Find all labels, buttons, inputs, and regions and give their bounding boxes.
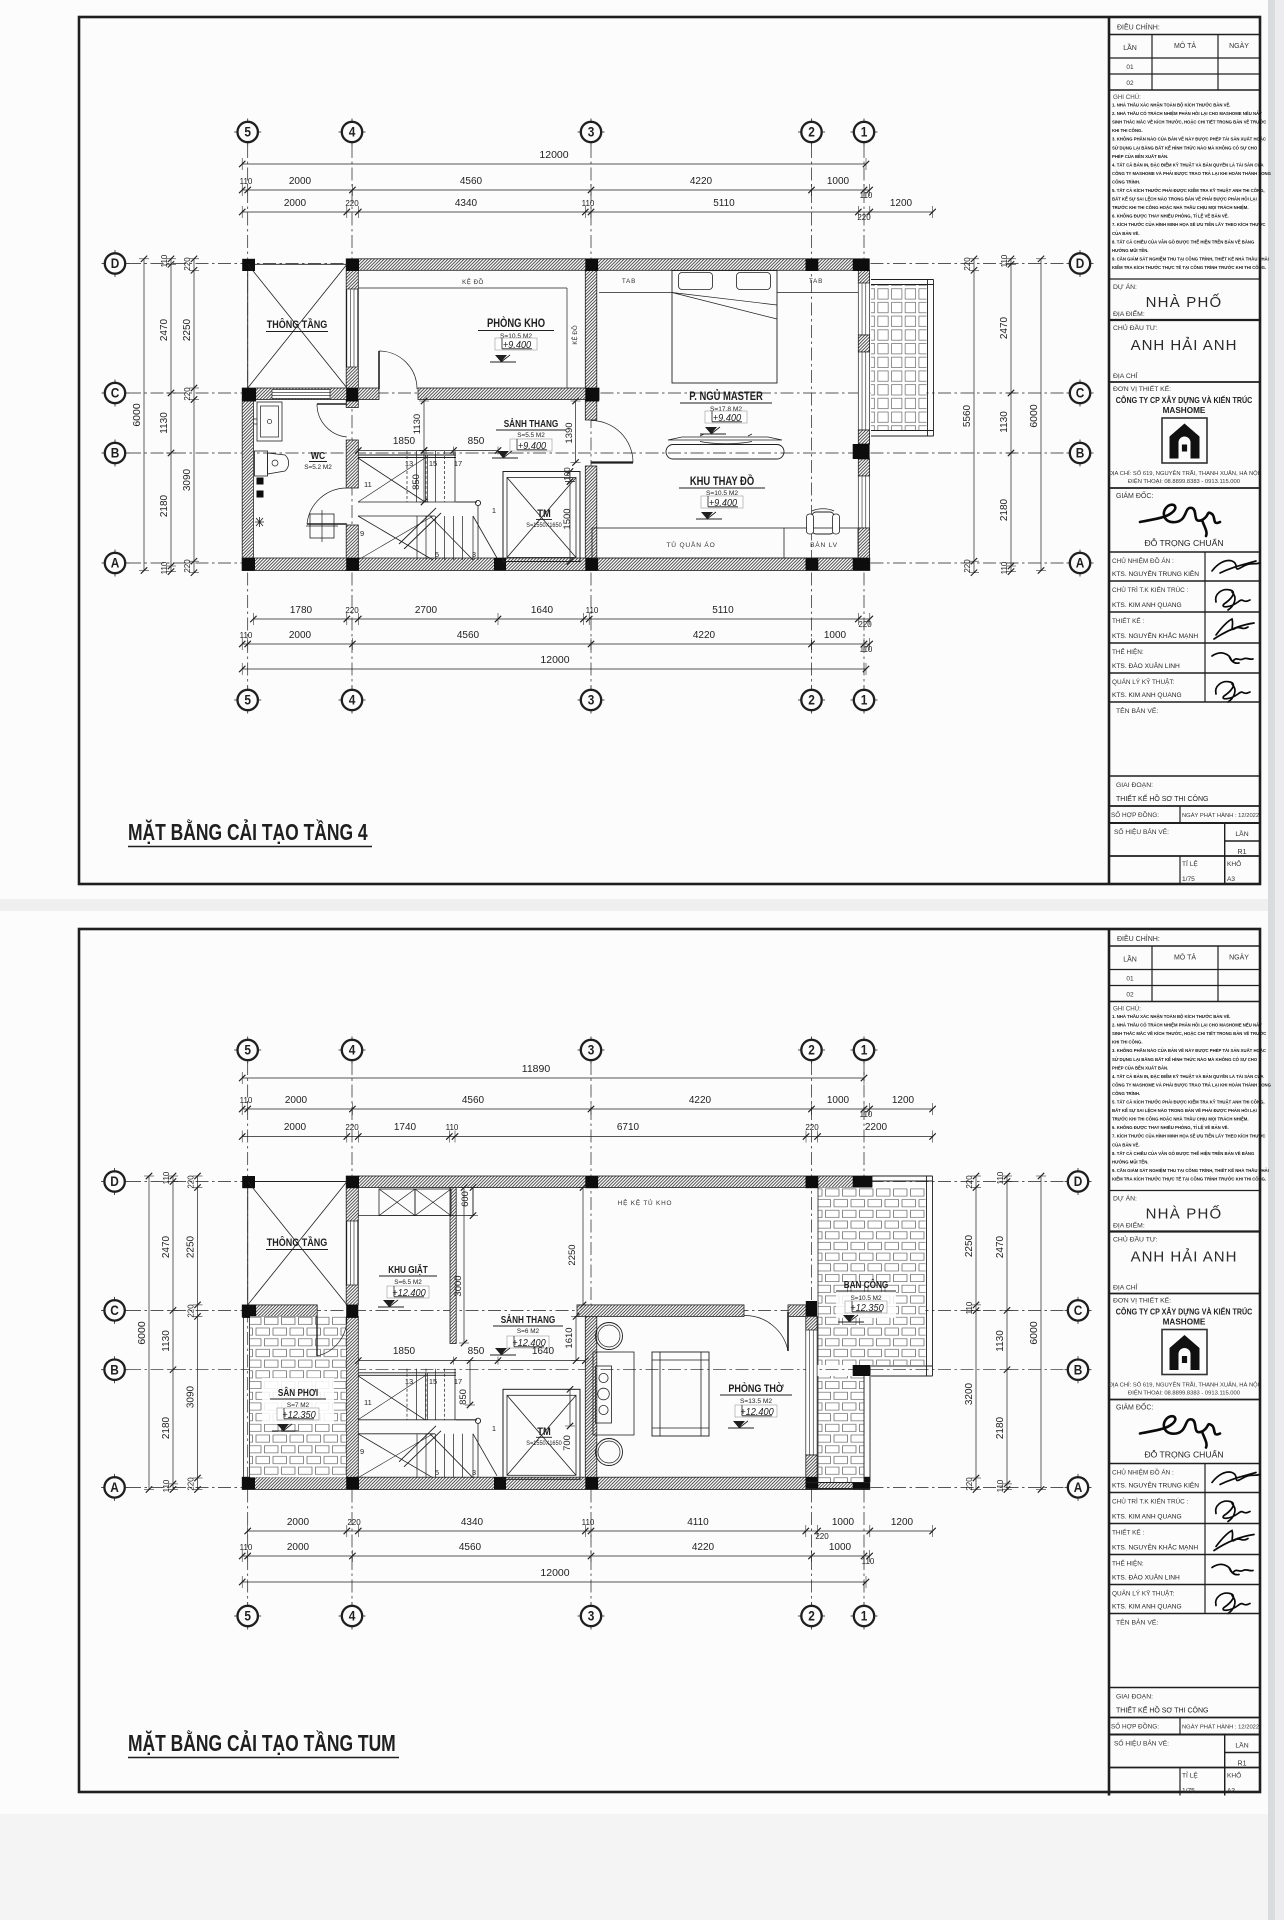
svg-text:ĐỊA ĐIỂM:: ĐỊA ĐIỂM: xyxy=(1113,309,1145,318)
svg-text:GIAI ĐOẠN:: GIAI ĐOẠN: xyxy=(1116,782,1153,789)
svg-text:110: 110 xyxy=(240,631,253,640)
svg-text:S=13.5 M2: S=13.5 M2 xyxy=(740,1398,772,1405)
svg-text:WC: WC xyxy=(311,450,325,461)
svg-text:5560: 5560 xyxy=(962,404,973,427)
svg-text:A: A xyxy=(110,1479,119,1495)
svg-text:5: 5 xyxy=(244,124,251,140)
svg-text:5110: 5110 xyxy=(712,605,734,616)
svg-text:KTS. NGUYỄN KHẮC MẠNH: KTS. NGUYỄN KHẮC MẠNH xyxy=(1112,1543,1198,1552)
svg-text:GHI CHÚ:: GHI CHÚ: xyxy=(1113,94,1141,101)
svg-text:220: 220 xyxy=(347,1518,361,1527)
svg-text:1000: 1000 xyxy=(827,1095,850,1106)
svg-text:+12.400: +12.400 xyxy=(740,1407,774,1418)
svg-text:ĐỊA CHỈ: SỐ 619, NGUYỄN TRÃI,: ĐỊA CHỈ: SỐ 619, NGUYỄN TRÃI, THANH XUÂN… xyxy=(1109,470,1260,477)
svg-text:17: 17 xyxy=(454,459,462,468)
svg-text:220: 220 xyxy=(183,257,192,271)
svg-text:1850: 1850 xyxy=(393,436,416,447)
svg-text:D: D xyxy=(110,1173,119,1189)
svg-text:12000: 12000 xyxy=(539,149,568,161)
svg-text:1640: 1640 xyxy=(531,605,554,616)
svg-text:4340: 4340 xyxy=(461,1517,484,1528)
svg-text:3: 3 xyxy=(588,692,595,708)
svg-text:KTS. ĐÀO XUÂN LINH: KTS. ĐÀO XUÂN LINH xyxy=(1112,1573,1180,1582)
svg-text:BAN CÔNG: BAN CÔNG xyxy=(844,1278,889,1290)
svg-text:220: 220 xyxy=(187,1175,196,1189)
svg-text:+12.350: +12.350 xyxy=(850,1303,884,1314)
svg-text:ANH HẢI ANH: ANH HẢI ANH xyxy=(1131,337,1238,354)
svg-text:ĐỊA ĐIỂM:: ĐỊA ĐIỂM: xyxy=(1113,1221,1145,1230)
svg-text:GHI CHÚ:: GHI CHÚ: xyxy=(1113,1006,1141,1013)
svg-text:+9.400: +9.400 xyxy=(709,498,738,509)
svg-text:TÊN BẢN VẼ:: TÊN BẢN VẼ: xyxy=(1116,706,1158,715)
svg-text:110: 110 xyxy=(582,199,595,208)
svg-text:6000: 6000 xyxy=(1028,1321,1040,1345)
svg-text:+9.400: +9.400 xyxy=(503,340,532,351)
svg-text:6000: 6000 xyxy=(136,1321,148,1345)
svg-text:QUẢN LÝ KỸ THUẬT:: QUẢN LÝ KỸ THUẬT: xyxy=(1112,677,1175,686)
svg-text:1640: 1640 xyxy=(532,1346,555,1357)
svg-text:110: 110 xyxy=(160,254,169,267)
svg-text:4340: 4340 xyxy=(455,198,478,209)
svg-text:850: 850 xyxy=(458,1389,469,1405)
svg-text:6000: 6000 xyxy=(1028,404,1040,428)
svg-text:KHU THAY ĐỒ: KHU THAY ĐỒ xyxy=(690,474,754,488)
svg-text:S=1550X1650: S=1550X1650 xyxy=(526,1441,562,1447)
svg-text:MÔ TẢ: MÔ TẢ xyxy=(1174,41,1196,50)
svg-text:KHỔ: KHỔ xyxy=(1227,859,1241,868)
svg-text:2000: 2000 xyxy=(287,1517,310,1528)
svg-text:2250: 2250 xyxy=(186,1235,197,1258)
svg-text:1: 1 xyxy=(861,1042,868,1058)
svg-text:4. TẤT CẢ BẢN IN, ĐẶC ĐIỂM KỸ: 4. TẤT CẢ BẢN IN, ĐẶC ĐIỂM KỸ THUẬT VÀ B… xyxy=(1112,161,1264,167)
svg-text:KTS. NGUYỄN KHẮC MẠNH: KTS. NGUYỄN KHẮC MẠNH xyxy=(1112,631,1198,640)
svg-text:2000: 2000 xyxy=(287,1542,310,1553)
svg-text:NHÀ PHỐ: NHÀ PHỐ xyxy=(1146,1205,1223,1223)
svg-text:CÔNG TY CP XÂY DỰNG VÀ KIẾN TR: CÔNG TY CP XÂY DỰNG VÀ KIẾN TRÚC xyxy=(1116,395,1253,406)
svg-text:220: 220 xyxy=(965,1477,974,1491)
svg-text:11890: 11890 xyxy=(522,1063,551,1075)
svg-text:110: 110 xyxy=(240,1543,253,1552)
svg-text:B: B xyxy=(1076,445,1085,461)
svg-text:220: 220 xyxy=(963,257,972,271)
svg-text:5110: 5110 xyxy=(713,198,735,209)
svg-text:KTS. KIM ANH QUANG: KTS. KIM ANH QUANG xyxy=(1112,1604,1182,1611)
svg-text:ĐỊA CHỈ: ĐỊA CHỈ xyxy=(1113,371,1138,380)
svg-text:110: 110 xyxy=(996,1171,1005,1184)
svg-text:B: B xyxy=(110,1362,119,1378)
svg-text:6000: 6000 xyxy=(131,403,143,427)
svg-text:2: 2 xyxy=(808,1608,815,1624)
svg-text:P. NGỦ MASTER: P. NGỦ MASTER xyxy=(689,389,763,403)
svg-text:4110: 4110 xyxy=(687,1517,709,1528)
svg-text:4: 4 xyxy=(349,124,356,140)
svg-text:A: A xyxy=(1074,1479,1083,1495)
svg-text:01: 01 xyxy=(1126,64,1134,71)
svg-text:3: 3 xyxy=(472,1468,476,1477)
svg-text:1/75: 1/75 xyxy=(1182,1788,1195,1795)
svg-text:SẢNH THANG: SẢNH THANG xyxy=(501,1313,556,1325)
svg-text:KỆ ĐỒ: KỆ ĐỒ xyxy=(571,325,579,344)
svg-text:1: 1 xyxy=(861,1608,868,1624)
svg-text:4. TẤT CẢ BẢN IN, ĐẶC ĐIỂM KỸ: 4. TẤT CẢ BẢN IN, ĐẶC ĐIỂM KỸ THUẬT VÀ B… xyxy=(1112,1073,1264,1079)
svg-text:11: 11 xyxy=(364,480,372,489)
svg-text:1780: 1780 xyxy=(290,605,313,616)
svg-text:850: 850 xyxy=(468,1346,485,1357)
svg-text:2250: 2250 xyxy=(964,1234,975,1257)
svg-text:1200: 1200 xyxy=(891,1517,914,1528)
svg-text:220: 220 xyxy=(965,1175,974,1189)
svg-text:220: 220 xyxy=(187,1304,196,1318)
svg-text:KTS. KIM ANH QUANG: KTS. KIM ANH QUANG xyxy=(1112,692,1182,699)
svg-text:ĐỊA CHỈ: SỐ 619, NGUYỄN TRÃI,: ĐỊA CHỈ: SỐ 619, NGUYỄN TRÃI, THANH XUÂN… xyxy=(1109,1382,1260,1389)
svg-text:C: C xyxy=(1074,1302,1083,1318)
svg-text:110: 110 xyxy=(160,561,169,574)
svg-text:1000: 1000 xyxy=(829,1542,852,1553)
svg-text:1130: 1130 xyxy=(995,1330,1006,1352)
svg-text:D: D xyxy=(111,255,120,271)
svg-text:NGÀY: NGÀY xyxy=(1229,41,1249,50)
svg-text:BÀN LV: BÀN LV xyxy=(810,540,838,549)
svg-text:220: 220 xyxy=(963,559,972,573)
svg-text:1/75: 1/75 xyxy=(1182,876,1195,883)
svg-text:5: 5 xyxy=(244,692,251,708)
svg-text:TAB: TAB xyxy=(809,278,823,285)
svg-text:700: 700 xyxy=(562,1435,573,1451)
svg-text:ANH HẢI ANH: ANH HẢI ANH xyxy=(1131,1249,1238,1266)
svg-text:12000: 12000 xyxy=(540,1567,569,1579)
svg-text:4560: 4560 xyxy=(462,1095,485,1106)
svg-text:MẶT BẰNG CẢI TẠO TẦNG TUM: MẶT BẰNG CẢI TẠO TẦNG TUM xyxy=(128,1730,396,1757)
svg-text:1130: 1130 xyxy=(412,414,423,434)
svg-text:1000: 1000 xyxy=(832,1517,855,1528)
svg-text:5: 5 xyxy=(244,1042,251,1058)
svg-text:TÊN BẢN VẼ:: TÊN BẢN VẼ: xyxy=(1116,1618,1158,1627)
svg-text:MASHOME: MASHOME xyxy=(1163,406,1206,415)
svg-text:SẢNH THANG: SẢNH THANG xyxy=(504,417,559,429)
svg-text:2180: 2180 xyxy=(159,494,170,517)
svg-text:02: 02 xyxy=(1126,992,1134,999)
svg-text:MẶT BẰNG CẢI TẠO TẦNG 4: MẶT BẰNG CẢI TẠO TẦNG 4 xyxy=(128,819,368,846)
svg-text:R1: R1 xyxy=(1238,1761,1247,1768)
svg-text:6710: 6710 xyxy=(617,1122,640,1133)
svg-text:3200: 3200 xyxy=(964,1382,975,1405)
svg-text:A3: A3 xyxy=(1227,1788,1235,1795)
svg-text:1: 1 xyxy=(492,1424,496,1433)
svg-text:220: 220 xyxy=(345,606,359,615)
svg-text:220: 220 xyxy=(815,1532,829,1541)
svg-text:3: 3 xyxy=(588,1608,595,1624)
svg-text:220: 220 xyxy=(858,620,872,629)
svg-text:GIAI ĐOẠN:: GIAI ĐOẠN: xyxy=(1116,1694,1153,1701)
svg-text:02: 02 xyxy=(1126,80,1134,87)
svg-text:D: D xyxy=(1074,1173,1083,1189)
svg-text:2180: 2180 xyxy=(995,1416,1006,1439)
svg-text:THÔNG TẦNG: THÔNG TẦNG xyxy=(267,1235,328,1249)
svg-text:1000: 1000 xyxy=(827,176,850,187)
svg-text:2700: 2700 xyxy=(415,605,438,616)
svg-text:110: 110 xyxy=(446,1123,459,1132)
svg-text:1850: 1850 xyxy=(393,1346,416,1357)
svg-text:C: C xyxy=(111,385,120,401)
svg-text:2250: 2250 xyxy=(182,318,193,341)
svg-text:TỈ LỆ: TỈ LỆ xyxy=(1182,859,1198,868)
svg-text:A: A xyxy=(111,555,120,571)
svg-text:220: 220 xyxy=(345,199,359,208)
svg-text:CÔNG TY CP XÂY DỰNG VÀ KIẾN TR: CÔNG TY CP XÂY DỰNG VÀ KIẾN TRÚC xyxy=(1116,1306,1253,1317)
svg-text:110: 110 xyxy=(240,1096,253,1105)
svg-text:01: 01 xyxy=(1126,976,1134,983)
svg-text:1130: 1130 xyxy=(161,1330,172,1352)
svg-text:2470: 2470 xyxy=(995,1235,1006,1258)
svg-text:5: 5 xyxy=(244,1608,251,1624)
svg-text:3: 3 xyxy=(588,1042,595,1058)
svg-text:NGÀY: NGÀY xyxy=(1229,953,1249,962)
svg-text:1130: 1130 xyxy=(999,411,1010,433)
svg-text:PHÒNG KHO: PHÒNG KHO xyxy=(487,316,545,330)
svg-text:15: 15 xyxy=(429,459,437,468)
svg-text:220: 220 xyxy=(345,1123,359,1132)
svg-text:THỂ HIỆN:: THỂ HIỆN: xyxy=(1112,1559,1144,1568)
svg-text:2000: 2000 xyxy=(289,176,312,187)
svg-text:ĐIỆN THOẠI: 08.8899.8383 - 091: ĐIỆN THOẠI: 08.8899.8383 - 0913.115.000 xyxy=(1128,1389,1240,1397)
svg-text:ĐIỆN THOẠI: 08.8899.8383 - 091: ĐIỆN THOẠI: 08.8899.8383 - 0913.115.000 xyxy=(1128,477,1240,485)
svg-text:2180: 2180 xyxy=(161,1416,172,1439)
svg-text:1200: 1200 xyxy=(890,198,913,209)
svg-text:R1: R1 xyxy=(1238,849,1247,856)
svg-text:1200: 1200 xyxy=(892,1095,915,1106)
svg-text:2: 2 xyxy=(808,692,815,708)
svg-text:A3: A3 xyxy=(1227,876,1235,883)
svg-text:4220: 4220 xyxy=(692,1542,715,1553)
svg-text:NHÀ PHỐ: NHÀ PHỐ xyxy=(1146,293,1223,311)
svg-text:1000: 1000 xyxy=(824,630,847,641)
svg-text:9: 9 xyxy=(360,1447,364,1456)
svg-text:S=6.5 M2: S=6.5 M2 xyxy=(394,1279,422,1286)
svg-text:110: 110 xyxy=(996,1479,1005,1492)
svg-text:110: 110 xyxy=(240,177,253,186)
svg-text:+12.400: +12.400 xyxy=(392,1288,426,1299)
svg-text:1740: 1740 xyxy=(394,1122,417,1133)
svg-text:110: 110 xyxy=(860,1110,873,1119)
svg-text:KTS. NGUYỄN TRUNG KIÊN: KTS. NGUYỄN TRUNG KIÊN xyxy=(1112,1481,1199,1490)
svg-text:2470: 2470 xyxy=(161,1235,172,1258)
svg-text:NGÀY PHÁT HÀNH : 12/2022: NGÀY PHÁT HÀNH : 12/2022 xyxy=(1182,1724,1259,1731)
svg-text:4: 4 xyxy=(349,1042,356,1058)
svg-text:110: 110 xyxy=(586,606,599,615)
svg-text:1: 1 xyxy=(492,506,496,515)
svg-text:HỆ KỆ TỦ KHO: HỆ KỆ TỦ KHO xyxy=(618,1198,673,1207)
svg-text:17: 17 xyxy=(454,1377,462,1386)
svg-text:2000: 2000 xyxy=(284,1122,307,1133)
svg-text:15: 15 xyxy=(429,1377,437,1386)
svg-text:4220: 4220 xyxy=(689,1095,712,1106)
svg-text:TỈ LỆ: TỈ LỆ xyxy=(1182,1771,1198,1780)
svg-text:12000: 12000 xyxy=(540,654,569,666)
svg-text:B: B xyxy=(111,445,120,461)
svg-text:600: 600 xyxy=(460,1191,471,1207)
svg-text:SÂN PHƠI: SÂN PHƠI xyxy=(278,1386,318,1398)
svg-text:4220: 4220 xyxy=(690,176,713,187)
svg-text:3090: 3090 xyxy=(182,468,193,491)
svg-text:+12.350: +12.350 xyxy=(282,1410,316,1421)
svg-text:D: D xyxy=(1076,255,1085,271)
svg-text:TM: TM xyxy=(537,1426,550,1438)
svg-text:110: 110 xyxy=(862,1557,875,1566)
svg-text:9: 9 xyxy=(360,529,364,538)
svg-text:220: 220 xyxy=(805,1123,819,1132)
svg-text:4: 4 xyxy=(349,692,356,708)
svg-text:4220: 4220 xyxy=(693,630,716,641)
svg-text:TAB: TAB xyxy=(622,278,636,285)
svg-text:11: 11 xyxy=(364,1398,372,1407)
svg-text:KTS. ĐÀO XUÂN LINH: KTS. ĐÀO XUÂN LINH xyxy=(1112,661,1180,670)
svg-text:KỆ ĐỒ: KỆ ĐỒ xyxy=(462,278,484,286)
svg-text:1130: 1130 xyxy=(159,412,170,434)
svg-text:1390: 1390 xyxy=(564,422,575,443)
svg-text:5: 5 xyxy=(435,550,439,559)
svg-text:110: 110 xyxy=(162,1479,171,1492)
svg-text:3000: 3000 xyxy=(453,1275,464,1296)
svg-text:1500: 1500 xyxy=(562,508,573,529)
svg-text:2250: 2250 xyxy=(567,1244,578,1265)
svg-text:2: 2 xyxy=(808,124,815,140)
svg-text:C: C xyxy=(1076,385,1085,401)
svg-text:2470: 2470 xyxy=(999,316,1010,339)
svg-text:2180: 2180 xyxy=(999,498,1010,521)
svg-text:TM: TM xyxy=(537,508,550,520)
svg-text:4560: 4560 xyxy=(457,630,480,641)
svg-text:110: 110 xyxy=(965,1301,974,1314)
svg-text:220: 220 xyxy=(187,1477,196,1491)
svg-text:DỰ ÁN:: DỰ ÁN: xyxy=(1113,282,1137,291)
svg-text:ĐỖ TRỌNG CHUẨN: ĐỖ TRỌNG CHUẨN xyxy=(1144,1449,1223,1460)
svg-text:1: 1 xyxy=(861,692,868,708)
svg-text:CỦA BẢN VẼ.: CỦA BẢN VẼ. xyxy=(1112,1141,1140,1147)
svg-text:B: B xyxy=(1074,1362,1083,1378)
svg-text:220: 220 xyxy=(183,387,192,401)
svg-text:C: C xyxy=(110,1302,119,1318)
svg-text:1: 1 xyxy=(861,124,868,140)
svg-text:3090: 3090 xyxy=(186,1385,197,1408)
svg-text:MÔ TẢ: MÔ TẢ xyxy=(1174,953,1196,962)
svg-text:+9.400: +9.400 xyxy=(713,413,742,424)
svg-text:ĐỖ TRỌNG CHUẨN: ĐỖ TRỌNG CHUẨN xyxy=(1144,537,1223,548)
svg-text:NGÀY PHÁT HÀNH : 12/2022: NGÀY PHÁT HÀNH : 12/2022 xyxy=(1182,812,1259,819)
svg-text:220: 220 xyxy=(857,213,871,222)
svg-text:4: 4 xyxy=(349,1608,356,1624)
svg-text:5: 5 xyxy=(435,1468,439,1477)
svg-text:KHU GIẶT: KHU GIẶT xyxy=(388,1264,428,1275)
svg-text:S=5.2 M2: S=5.2 M2 xyxy=(304,464,332,471)
svg-text:S=1550X1650: S=1550X1650 xyxy=(526,523,562,529)
svg-text:KTS. NGUYỄN TRUNG KIÊN: KTS. NGUYỄN TRUNG KIÊN xyxy=(1112,569,1199,578)
svg-text:2000: 2000 xyxy=(284,198,307,209)
svg-text:1610: 1610 xyxy=(564,1327,575,1348)
svg-text:2: 2 xyxy=(808,1042,815,1058)
svg-text:S=5.5 M2: S=5.5 M2 xyxy=(517,432,545,439)
svg-text:PHÒNG THỜ: PHÒNG THỜ xyxy=(728,1381,784,1395)
svg-text:THỂ HIỆN:: THỂ HIỆN: xyxy=(1112,647,1144,656)
svg-text:S=6 M2: S=6 M2 xyxy=(517,1328,540,1335)
svg-text:KHỔ: KHỔ xyxy=(1227,1771,1241,1780)
svg-text:DỰ ÁN:: DỰ ÁN: xyxy=(1113,1194,1137,1203)
svg-text:4560: 4560 xyxy=(459,1542,482,1553)
svg-text:220: 220 xyxy=(183,559,192,573)
svg-text:3: 3 xyxy=(472,550,476,559)
svg-text:ĐỊA CHỈ: ĐỊA CHỈ xyxy=(1113,1283,1138,1292)
svg-text:2000: 2000 xyxy=(289,630,312,641)
svg-text:A: A xyxy=(1076,555,1085,571)
svg-text:110: 110 xyxy=(1000,254,1009,267)
svg-text:3: 3 xyxy=(588,124,595,140)
svg-text:110: 110 xyxy=(1000,561,1009,574)
svg-text:+9.400: +9.400 xyxy=(518,441,547,452)
svg-text:QUẢN LÝ KỸ THUẬT:: QUẢN LÝ KỸ THUẬT: xyxy=(1112,1589,1175,1598)
svg-text:MASHOME: MASHOME xyxy=(1163,1318,1206,1327)
svg-text:CỦA BẢN VẼ.: CỦA BẢN VẼ. xyxy=(1112,229,1140,235)
svg-text:850: 850 xyxy=(468,436,485,447)
svg-text:KTS. KIM ANH QUANG: KTS. KIM ANH QUANG xyxy=(1112,1514,1182,1521)
svg-text:2470: 2470 xyxy=(159,318,170,341)
svg-text:110: 110 xyxy=(860,645,873,654)
svg-text:110: 110 xyxy=(860,191,873,200)
svg-text:110: 110 xyxy=(582,1518,595,1527)
svg-text:110: 110 xyxy=(162,1171,171,1184)
svg-text:KTS. KIM ANH QUANG: KTS. KIM ANH QUANG xyxy=(1112,602,1182,609)
svg-text:THÔNG TẦNG: THÔNG TẦNG xyxy=(267,317,328,331)
svg-text:2000: 2000 xyxy=(285,1095,308,1106)
svg-text:2200: 2200 xyxy=(865,1122,888,1133)
svg-text:4560: 4560 xyxy=(460,176,483,187)
